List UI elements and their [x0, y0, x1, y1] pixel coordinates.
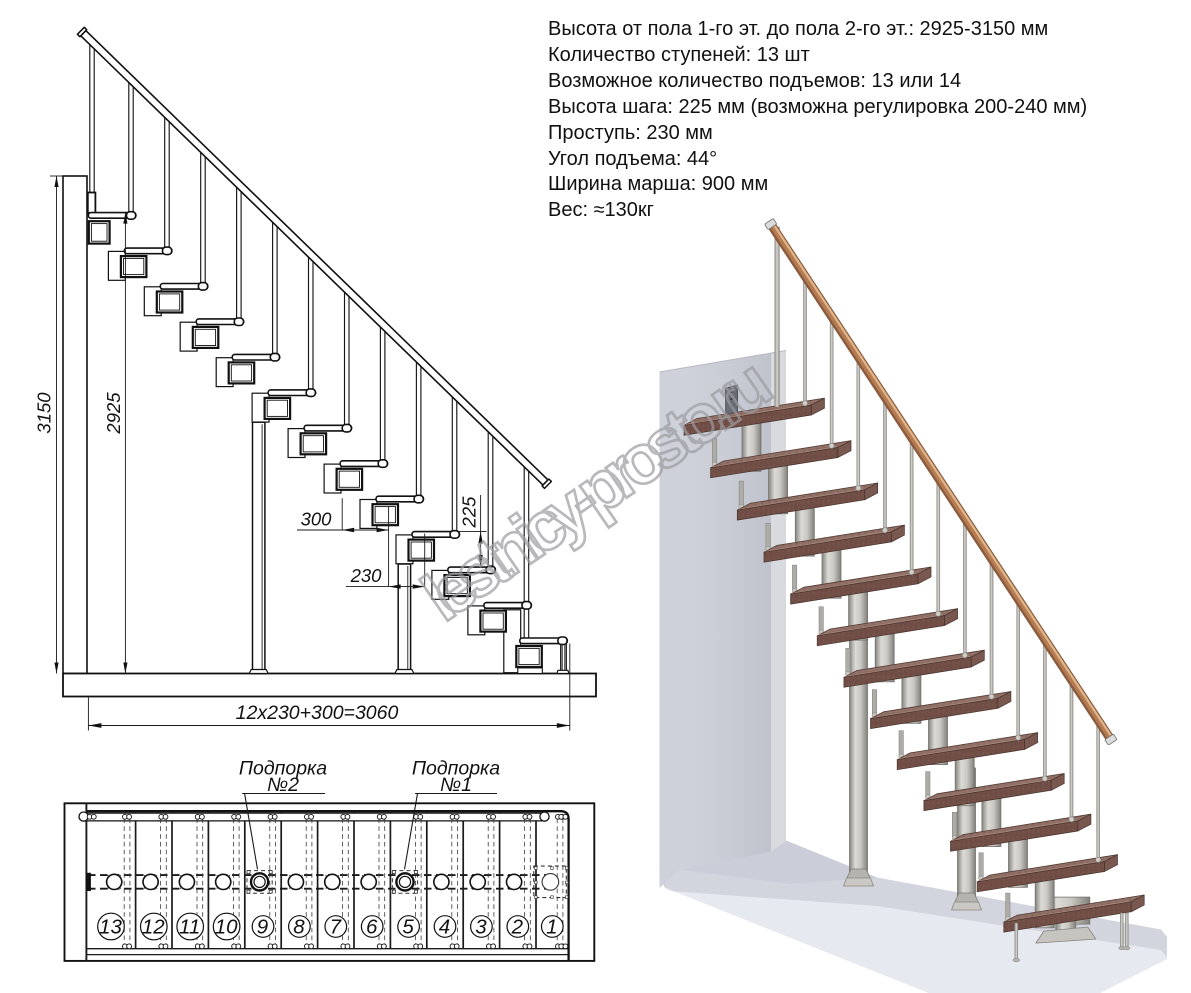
svg-text:7: 7: [330, 916, 343, 939]
svg-text:11: 11: [179, 916, 200, 939]
svg-text:5: 5: [402, 916, 414, 939]
svg-text:2925: 2925: [103, 392, 124, 435]
svg-text:12x230+300=3060: 12x230+300=3060: [236, 702, 399, 724]
svg-text:9: 9: [257, 916, 268, 939]
svg-text:6: 6: [366, 916, 378, 939]
svg-text:230: 230: [350, 565, 383, 586]
svg-text:4: 4: [439, 916, 450, 939]
svg-text:225: 225: [459, 496, 480, 529]
svg-text:№1: №1: [440, 774, 472, 796]
svg-text:13: 13: [99, 916, 122, 939]
svg-text:1: 1: [546, 916, 557, 939]
svg-text:10: 10: [215, 916, 238, 939]
svg-text:12: 12: [142, 916, 165, 939]
svg-text:3: 3: [475, 916, 487, 939]
svg-text:300: 300: [301, 509, 333, 530]
svg-text:2: 2: [511, 916, 524, 939]
svg-text:№2: №2: [267, 774, 299, 796]
svg-text:3150: 3150: [34, 392, 55, 434]
svg-text:8: 8: [293, 916, 305, 939]
